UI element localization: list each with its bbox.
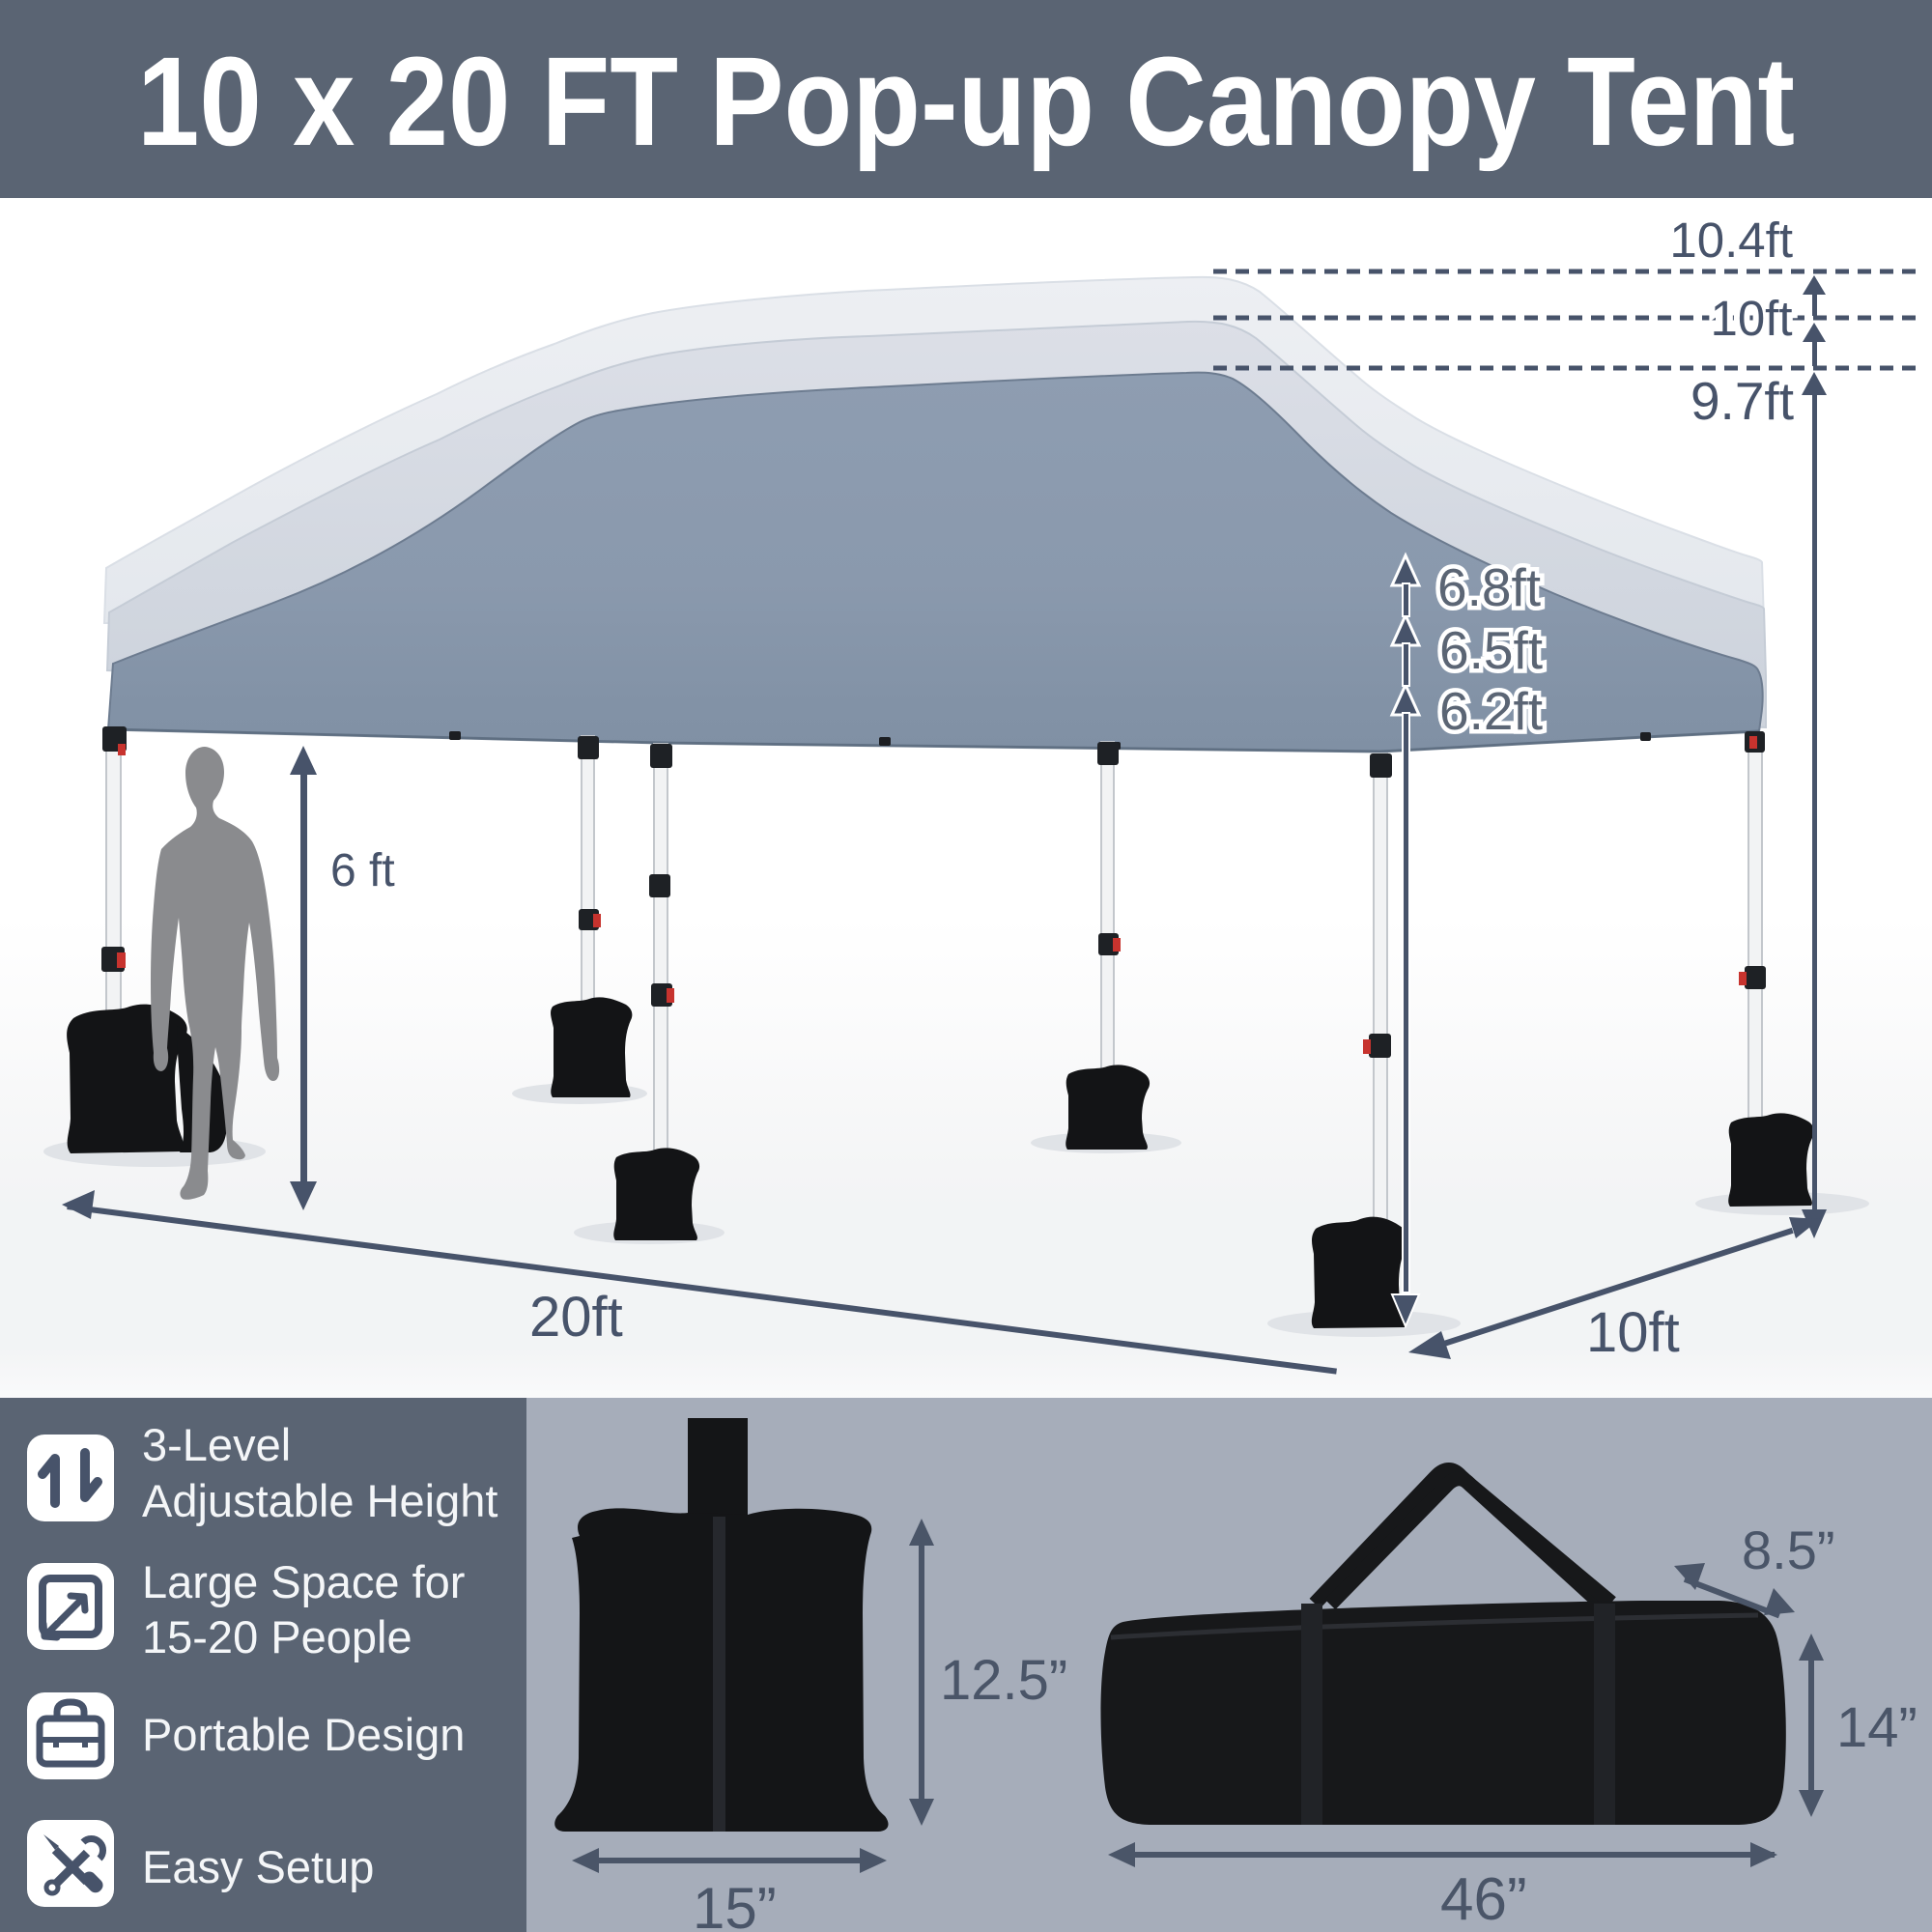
svg-text:15-20 People: 15-20 People xyxy=(142,1611,412,1662)
svg-text:8.5”: 8.5” xyxy=(1742,1520,1835,1580)
svg-text:Adjustable Height: Adjustable Height xyxy=(142,1475,497,1526)
svg-text:6.8ft: 6.8ft xyxy=(1437,557,1541,617)
svg-text:14”: 14” xyxy=(1836,1696,1918,1759)
svg-text:10.4ft: 10.4ft xyxy=(1669,213,1793,268)
svg-text:Easy Setup: Easy Setup xyxy=(142,1841,374,1892)
svg-text:15”: 15” xyxy=(693,1876,777,1932)
svg-text:6.5ft: 6.5ft xyxy=(1439,620,1543,680)
svg-text:Portable Design: Portable Design xyxy=(142,1709,465,1760)
svg-text:10 x 20 FT Pop-up Canopy Tent: 10 x 20 FT Pop-up Canopy Tent xyxy=(137,30,1795,172)
svg-text:Large Space for: Large Space for xyxy=(142,1556,465,1607)
svg-text:10ft: 10ft xyxy=(1586,1301,1680,1364)
svg-text:6 ft: 6 ft xyxy=(330,845,395,896)
svg-text:20ft: 20ft xyxy=(529,1286,623,1349)
svg-text:6.2ft: 6.2ft xyxy=(1439,681,1543,741)
svg-text:9.7ft: 9.7ft xyxy=(1690,371,1794,431)
svg-text:3-Level: 3-Level xyxy=(142,1419,291,1470)
svg-text:12.5”: 12.5” xyxy=(940,1649,1067,1712)
svg-text:10ft: 10ft xyxy=(1710,291,1792,346)
svg-text:46”: 46” xyxy=(1440,1866,1527,1932)
